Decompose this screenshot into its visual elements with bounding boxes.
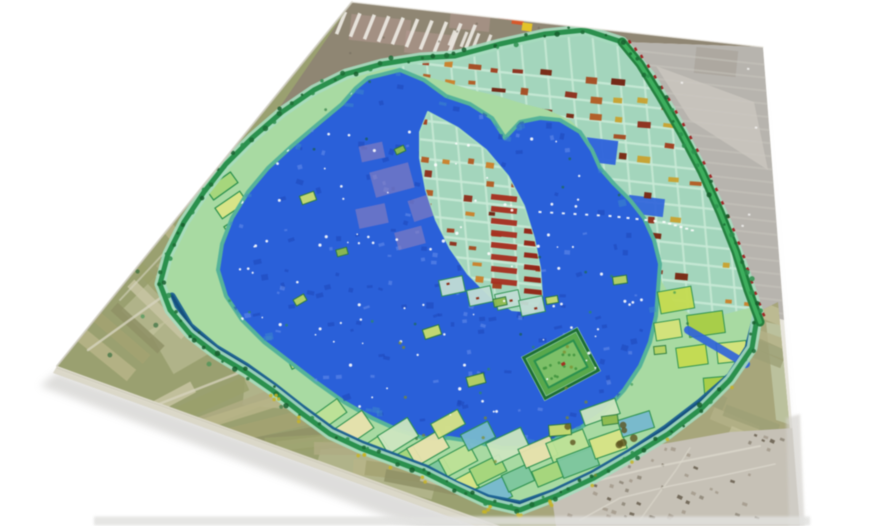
photo-artifacts [94, 517, 810, 526]
masterplan-photo [0, 0, 882, 526]
masterplan-canvas [0, 0, 882, 526]
